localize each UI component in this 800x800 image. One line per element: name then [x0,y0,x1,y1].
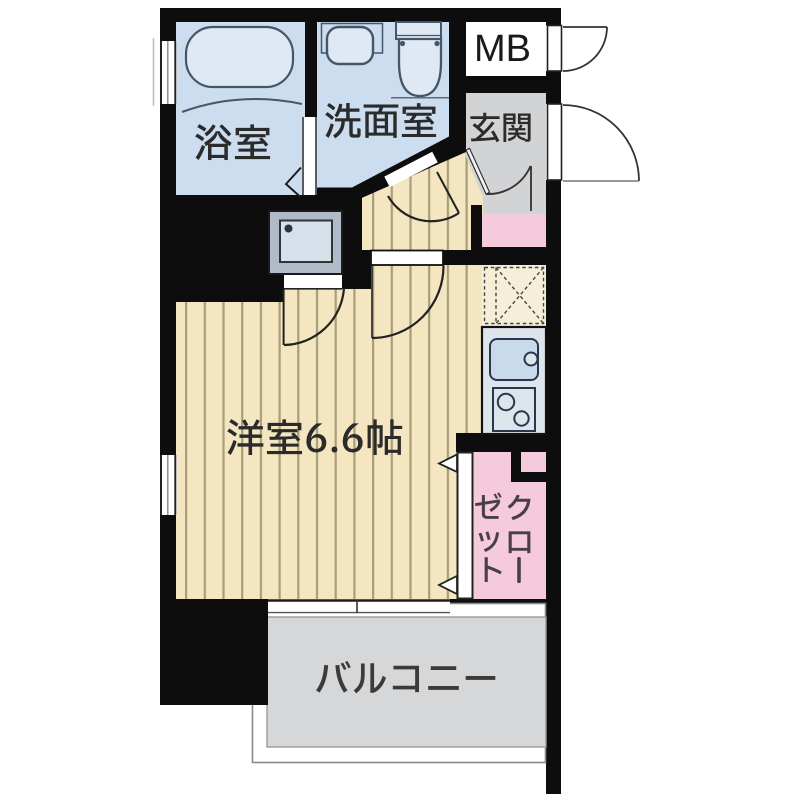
svg-text:MB: MB [474,28,531,70]
